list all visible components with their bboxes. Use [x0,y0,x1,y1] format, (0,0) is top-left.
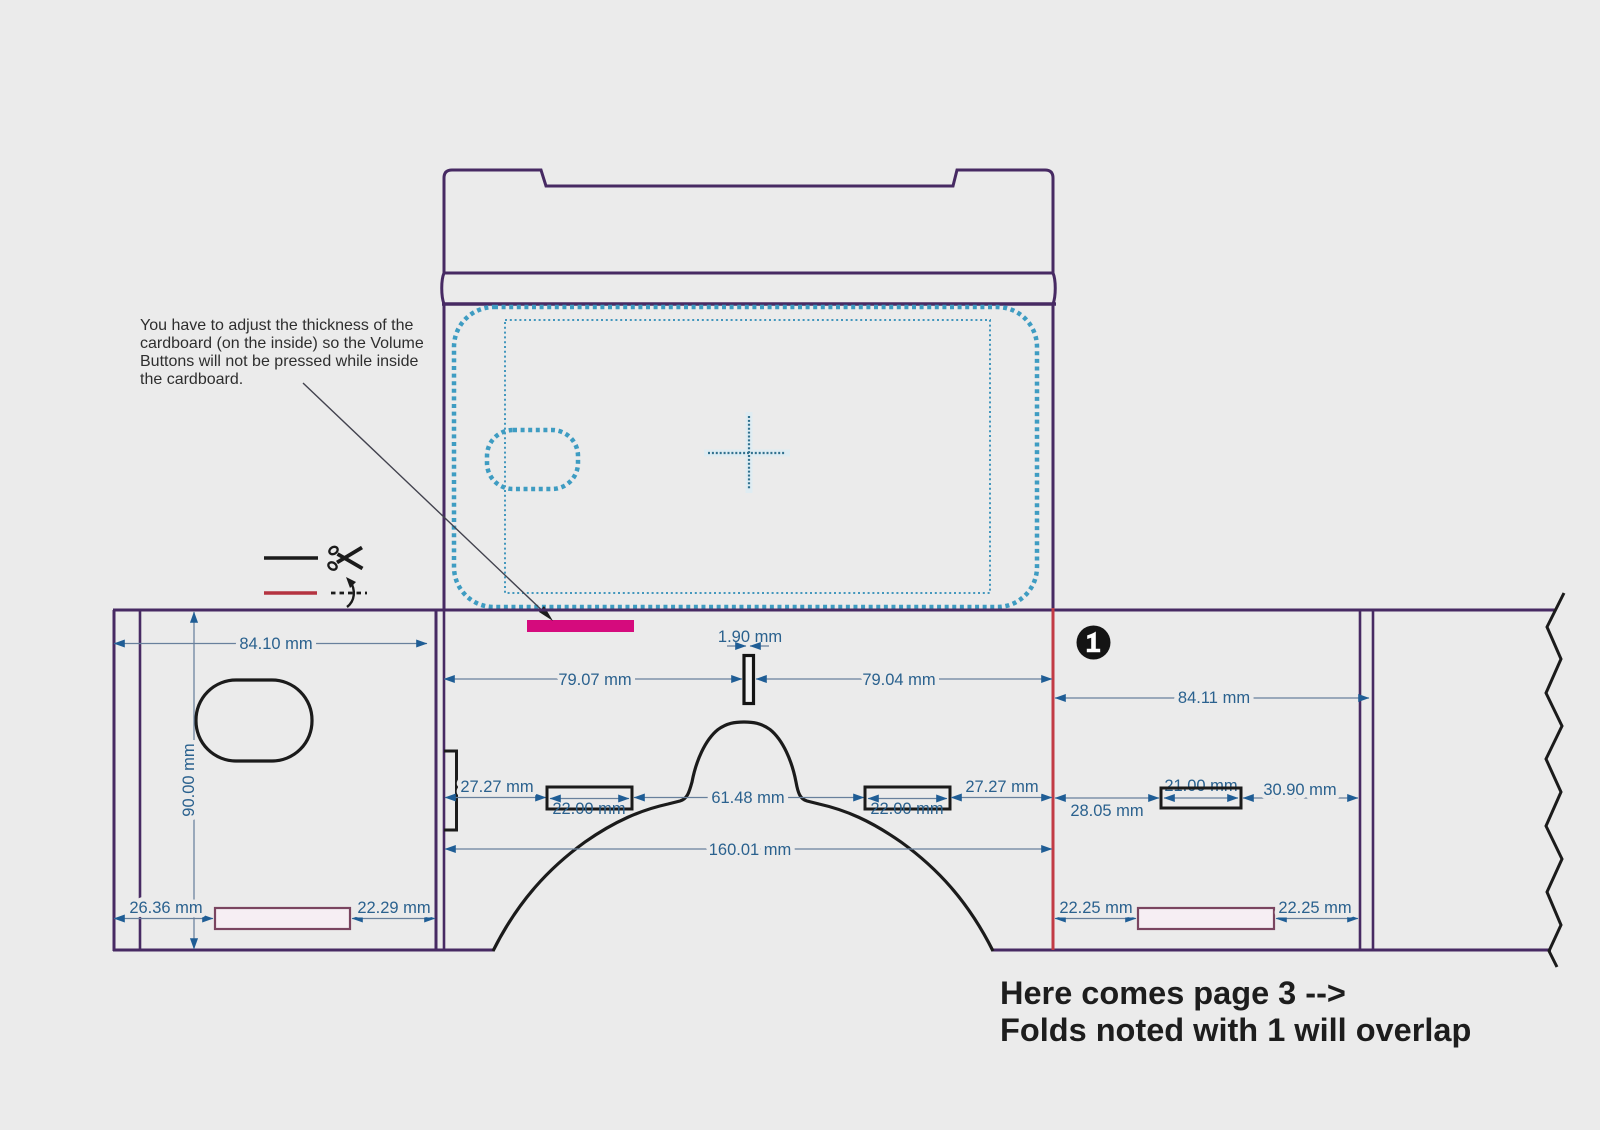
svg-text:28.05 mm: 28.05 mm [1070,802,1143,820]
svg-text:Buttons will not be pressed wh: Buttons will not be pressed while inside [140,353,418,370]
svg-text:22.00 mm: 22.00 mm [552,800,625,818]
svg-text:the cardboard.: the cardboard. [140,371,243,388]
svg-text:22.29 mm: 22.29 mm [357,899,430,917]
svg-text:Here comes page 3 -->: Here comes page 3 --> [1000,975,1346,1011]
svg-text:79.04 mm: 79.04 mm [862,671,935,689]
svg-text:160.01 mm: 160.01 mm [709,841,792,859]
svg-text:cardboard (on the inside) so t: cardboard (on the inside) so the Volume [140,335,424,352]
svg-text:26.36 mm: 26.36 mm [129,899,202,917]
svg-text:79.07 mm: 79.07 mm [558,671,631,689]
svg-text:22.25 mm: 22.25 mm [1278,899,1351,917]
svg-text:30.90 mm: 30.90 mm [1263,781,1336,799]
svg-text:61.48 mm: 61.48 mm [711,789,784,807]
svg-text:Folds noted with 1 will overla: Folds noted with 1 will overlap [1000,1012,1471,1048]
svg-text:90.00 mm: 90.00 mm [180,743,198,816]
svg-text:84.10 mm: 84.10 mm [239,635,312,653]
svg-text:27.27 mm: 27.27 mm [965,778,1038,796]
svg-text:You have to adjust the thickne: You have to adjust the thickness of the [140,317,413,334]
svg-text:21.00 mm: 21.00 mm [1164,777,1237,795]
svg-text:84.11 mm: 84.11 mm [1178,689,1250,707]
svg-text:22.25 mm: 22.25 mm [1059,899,1132,917]
svg-text:22.00 mm: 22.00 mm [870,800,943,818]
svg-text:1.90 mm: 1.90 mm [718,628,782,646]
svg-text:27.27 mm: 27.27 mm [460,778,533,796]
